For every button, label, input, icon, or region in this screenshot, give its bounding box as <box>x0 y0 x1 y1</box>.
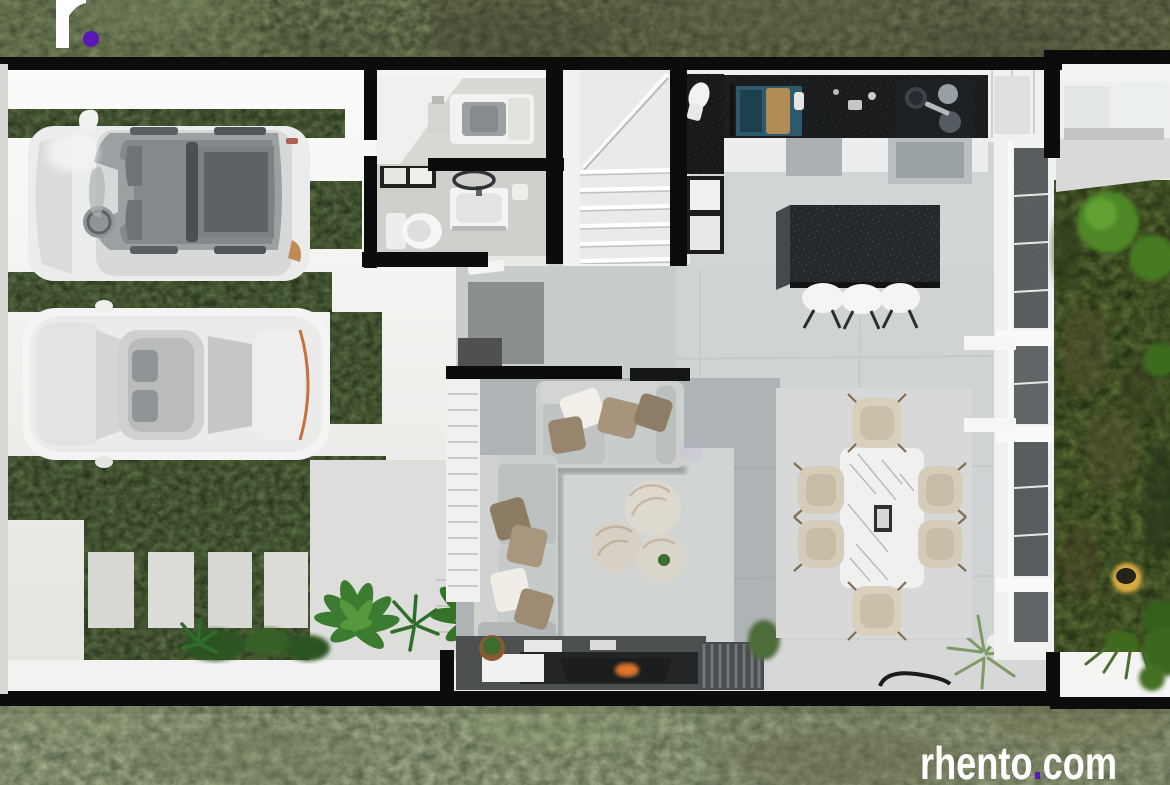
svg-text:rhento.com: rhento.com <box>920 737 1117 785</box>
